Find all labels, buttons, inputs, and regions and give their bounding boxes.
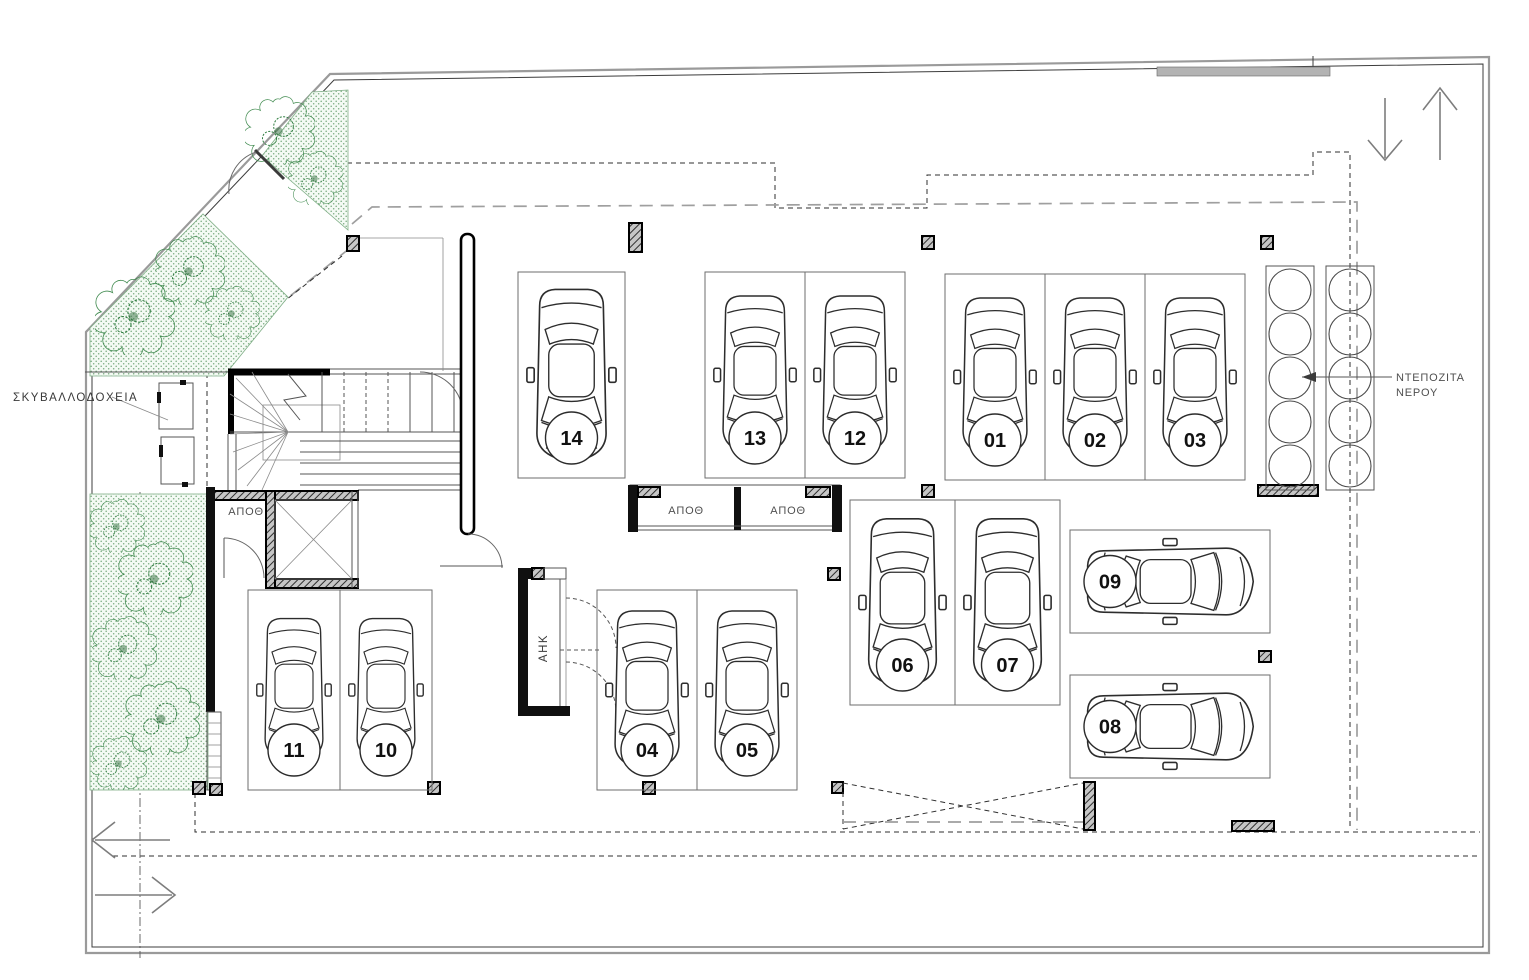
ramp xyxy=(843,783,1083,829)
spot-number: 12 xyxy=(844,428,866,450)
spot-number: 07 xyxy=(996,655,1018,677)
spot-number: 10 xyxy=(375,740,397,762)
spot-number: 13 xyxy=(744,428,766,450)
stair-winder-fan xyxy=(230,372,288,490)
spot-number: 03 xyxy=(1184,430,1206,452)
parking-spot-09: 09 xyxy=(1070,530,1270,633)
storage-1-label: ΑΠΟΘ xyxy=(668,505,704,517)
garbage-bin xyxy=(159,383,193,429)
storage-room-left: ΑΠΟΘ xyxy=(224,506,264,578)
parking-spot-02: 02 xyxy=(1045,274,1145,480)
top-retaining-wall xyxy=(1157,67,1330,76)
water-tanks-label-2: ΝΕΡΟΥ xyxy=(1396,387,1438,399)
garbage-label: ΣΚΥΒΑΛΛΟΔΟΧΕΙΑ xyxy=(13,392,138,404)
spot-number: 08 xyxy=(1099,717,1121,739)
electrical-room-label: ΑΗΚ xyxy=(538,634,550,662)
spot-number: 01 xyxy=(984,430,1006,452)
water-tank xyxy=(1269,313,1311,355)
parking-spot-03: 03 xyxy=(1145,274,1245,480)
parking-spot-08: 08 xyxy=(1070,675,1270,778)
storage-rooms-central: ΑΠΟΘ ΑΠΟΘ xyxy=(628,485,842,532)
up-arrow-icon xyxy=(1423,88,1457,160)
garbage-area: ΣΚΥΒΑΛΛΟΔΟΧΕΙΑ xyxy=(13,372,228,487)
garbage-bin xyxy=(161,437,194,484)
water-tanks-label-1: ΝΤΕΠΟΖΙΤΑ xyxy=(1396,372,1465,384)
spot-number: 02 xyxy=(1084,430,1106,452)
corridor-walls xyxy=(352,234,503,568)
spot-number: 04 xyxy=(636,740,659,762)
parking-spots-layer: 1413120102030607090811100405 xyxy=(248,272,1270,790)
storage-left-label: ΑΠΟΘ xyxy=(228,506,264,518)
water-tank xyxy=(1269,357,1311,399)
parking-spot-05: 05 xyxy=(697,590,797,790)
spot-number: 06 xyxy=(891,655,913,677)
parking-spot-14: 14 xyxy=(518,272,625,478)
parking-spot-04: 04 xyxy=(597,590,697,790)
exit-arrow-icon xyxy=(92,822,170,858)
entry-arrow-icon xyxy=(95,877,175,913)
spot-number: 11 xyxy=(283,740,304,762)
stair-treads xyxy=(300,372,460,485)
water-tank xyxy=(1269,269,1311,311)
parking-spot-10: 10 xyxy=(340,590,432,790)
parking-spot-06: 06 xyxy=(850,500,955,705)
parking-floor-plan: ΣΚΥΒΑΛΛΟΔΟΧΕΙΑ xyxy=(0,0,1529,980)
water-tank xyxy=(1269,445,1311,487)
spot-number: 05 xyxy=(736,740,758,762)
down-arrow-icon xyxy=(1368,98,1402,160)
floor-plan-canvas: ΣΚΥΒΑΛΛΟΔΟΧΕΙΑ xyxy=(0,0,1529,980)
spot-number: 14 xyxy=(560,428,583,450)
spot-number: 09 xyxy=(1099,572,1121,594)
setback-dashed-lines xyxy=(113,152,1480,958)
parking-spot-01: 01 xyxy=(945,274,1045,480)
storage-2-label: ΑΠΟΘ xyxy=(770,505,806,517)
parking-spot-13: 13 xyxy=(705,272,805,478)
water-tank xyxy=(1269,401,1311,443)
parking-spot-07: 07 xyxy=(955,500,1060,705)
parking-spot-12: 12 xyxy=(805,272,905,478)
staircase xyxy=(228,369,463,490)
parking-spot-11: 11 xyxy=(248,590,340,790)
